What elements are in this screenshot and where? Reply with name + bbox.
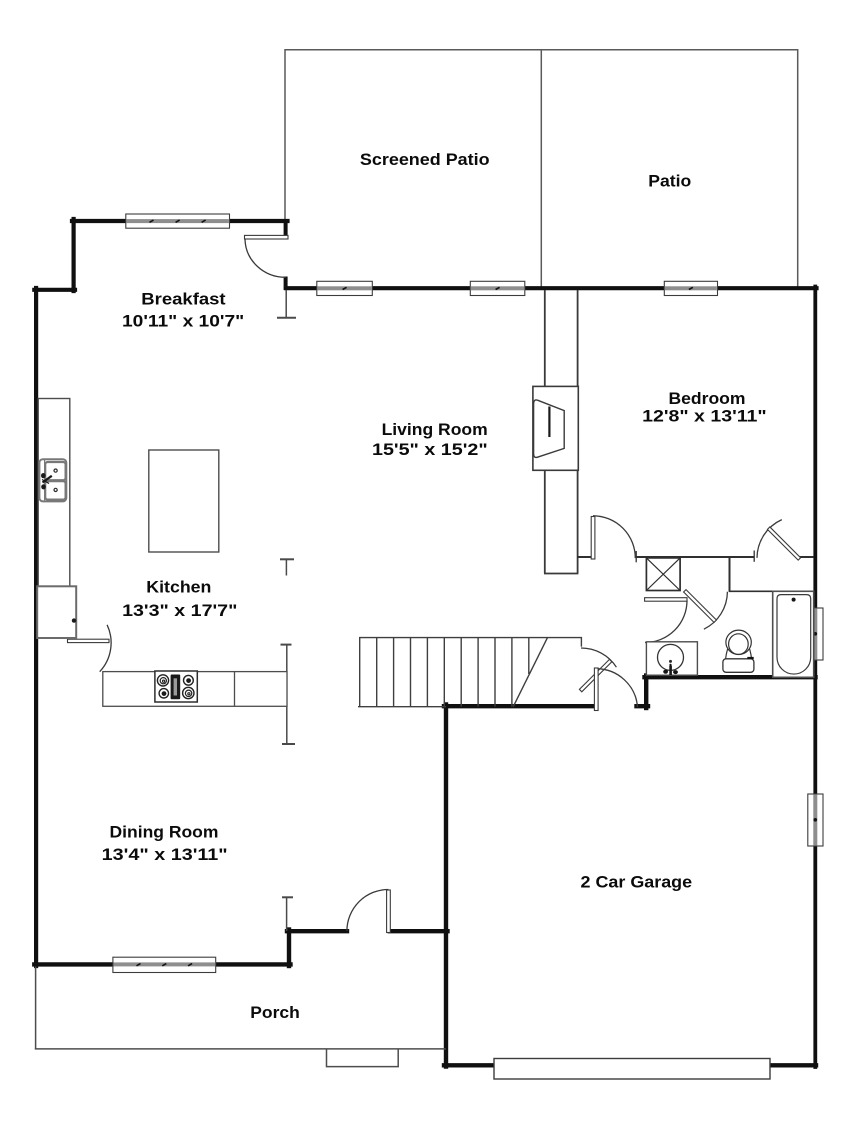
svg-text:Kitchen: Kitchen	[146, 578, 211, 597]
svg-text:13'3" x 17'7": 13'3" x 17'7"	[122, 601, 237, 620]
svg-text:Dining Room: Dining Room	[110, 823, 219, 842]
svg-text:13'4" x 13'11": 13'4" x 13'11"	[102, 845, 228, 864]
svg-text:Bedroom: Bedroom	[669, 389, 746, 408]
svg-text:Breakfast: Breakfast	[141, 290, 226, 309]
svg-text:2 Car Garage: 2 Car Garage	[581, 873, 693, 892]
svg-text:Living Room: Living Room	[382, 420, 488, 439]
svg-text:Porch: Porch	[250, 1003, 300, 1022]
svg-text:12'8" x 13'11": 12'8" x 13'11"	[642, 406, 767, 425]
svg-text:10'11" x 10'7": 10'11" x 10'7"	[122, 311, 244, 330]
svg-text:Patio: Patio	[648, 172, 691, 191]
svg-text:15'5" x 15'2": 15'5" x 15'2"	[372, 440, 488, 459]
svg-text:Screened Patio: Screened Patio	[360, 150, 490, 169]
